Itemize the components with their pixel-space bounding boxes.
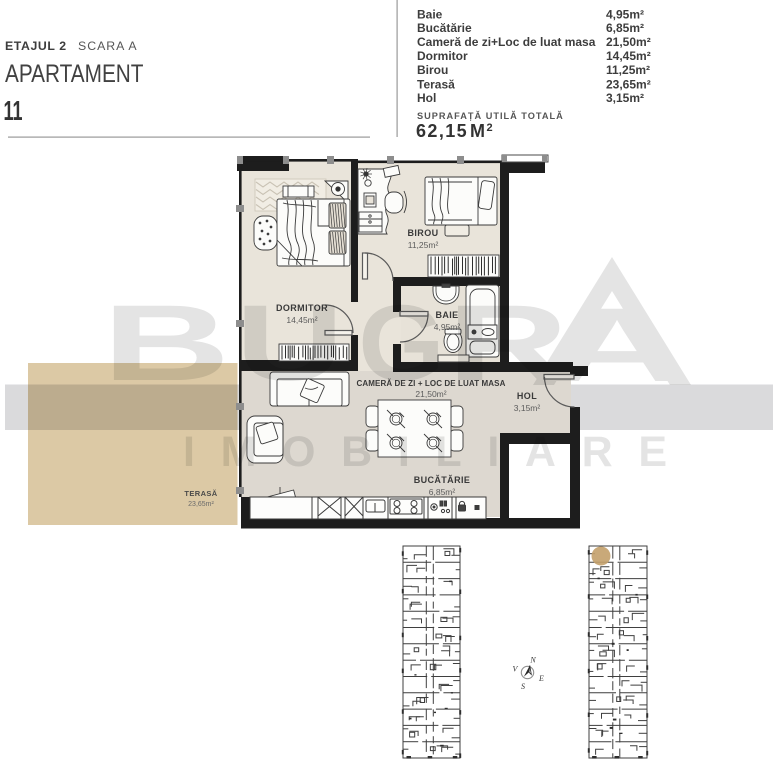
svg-text:11,25m²: 11,25m² bbox=[408, 240, 439, 250]
svg-text:6,85m²: 6,85m² bbox=[429, 487, 456, 497]
svg-text:4,95m²: 4,95m² bbox=[606, 8, 644, 22]
svg-text:21,50m²: 21,50m² bbox=[606, 35, 651, 49]
svg-text:3,15m²: 3,15m² bbox=[514, 403, 541, 413]
svg-text:Terasă: Terasă bbox=[417, 78, 455, 92]
svg-text:11,25m²: 11,25m² bbox=[606, 63, 650, 77]
svg-text:BIROU: BIROU bbox=[408, 228, 439, 238]
svg-text:23,65m²: 23,65m² bbox=[606, 78, 651, 92]
svg-text:B: B bbox=[102, 283, 230, 403]
svg-text:Hol: Hol bbox=[417, 91, 436, 105]
svg-text:Dormitor: Dormitor bbox=[417, 49, 468, 63]
svg-text:S: S bbox=[521, 682, 525, 691]
svg-text:N: N bbox=[529, 656, 536, 665]
svg-text:G: G bbox=[358, 283, 445, 403]
svg-text:SUPRAFAȚĂ UTILĂ TOTALĂ: SUPRAFAȚĂ UTILĂ TOTALĂ bbox=[417, 111, 564, 121]
svg-text:Cameră de zi+Loc de luat masa: Cameră de zi+Loc de luat masa bbox=[417, 35, 596, 49]
svg-text:BUCĂTĂRIE: BUCĂTĂRIE bbox=[414, 475, 471, 485]
svg-text:Baie: Baie bbox=[417, 8, 443, 22]
svg-text:23,65m²: 23,65m² bbox=[188, 501, 214, 508]
svg-text:62,15M2: 62,15M2 bbox=[416, 121, 494, 141]
svg-text:14,45m²: 14,45m² bbox=[606, 49, 651, 63]
svg-text:Bucătărie: Bucătărie bbox=[417, 21, 472, 35]
svg-text:11: 11 bbox=[4, 95, 23, 126]
svg-text:E: E bbox=[538, 674, 544, 683]
svg-text:TERASĂ: TERASĂ bbox=[184, 489, 217, 498]
svg-text:3,15m²: 3,15m² bbox=[606, 91, 644, 105]
svg-text:SCARA A: SCARA A bbox=[78, 39, 138, 53]
svg-text:Birou: Birou bbox=[417, 63, 448, 77]
svg-text:ETAJUL 2: ETAJUL 2 bbox=[5, 39, 67, 53]
svg-text:APARTAMENT: APARTAMENT bbox=[5, 61, 144, 88]
svg-text:U: U bbox=[236, 282, 344, 403]
svg-text:A: A bbox=[545, 286, 689, 403]
svg-text:6,85m²: 6,85m² bbox=[606, 21, 644, 35]
